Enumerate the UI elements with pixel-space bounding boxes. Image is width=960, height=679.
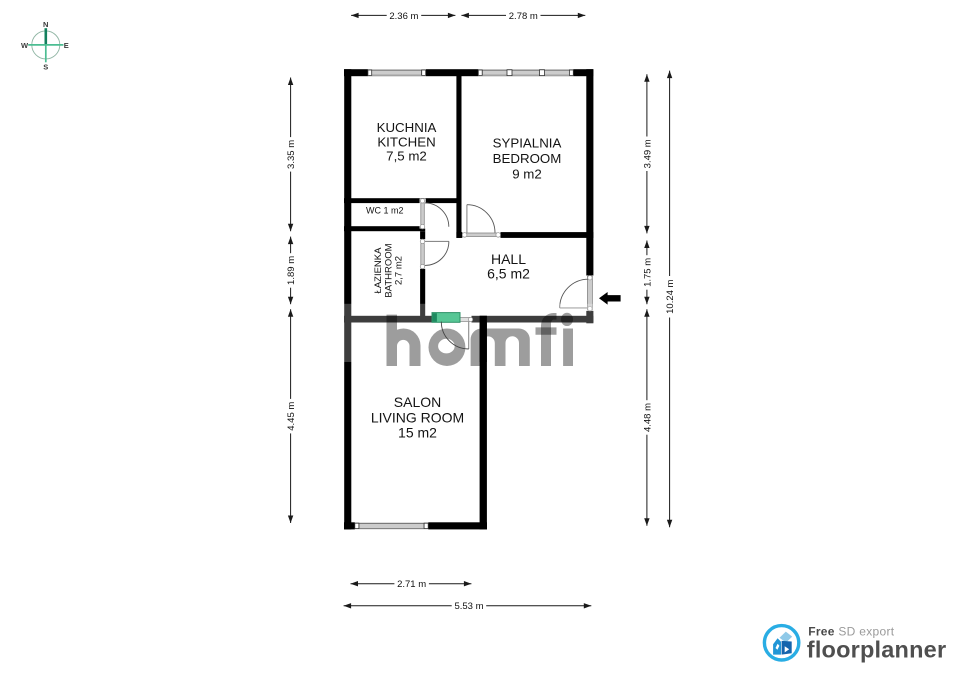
svg-text:2.78 m: 2.78 m [509, 11, 538, 22]
svg-text:5.53 m: 5.53 m [454, 601, 483, 612]
svg-text:4.45 m: 4.45 m [286, 402, 297, 431]
svg-text:7,5 m2: 7,5 m2 [386, 149, 427, 164]
svg-text:2.71 m: 2.71 m [397, 579, 426, 590]
svg-text:KITCHEN: KITCHEN [377, 134, 435, 149]
svg-text:N: N [43, 20, 48, 29]
svg-text:SYPIALNIA: SYPIALNIA [493, 135, 562, 150]
svg-text:KUCHNIA: KUCHNIA [377, 120, 437, 135]
svg-text:1.89 m: 1.89 m [286, 256, 297, 285]
svg-text:9 m2: 9 m2 [512, 167, 542, 182]
svg-text:3.49 m: 3.49 m [642, 139, 653, 168]
svg-text:6,5 m2: 6,5 m2 [487, 265, 530, 281]
svg-text:E: E [64, 41, 69, 50]
svg-text:2,7 m2: 2,7 m2 [394, 256, 405, 285]
svg-text:2.36 m: 2.36 m [389, 11, 418, 22]
svg-text:3.35 m: 3.35 m [286, 140, 297, 169]
svg-text:10.24 m: 10.24 m [665, 279, 676, 313]
svg-text:WC 1 m2: WC 1 m2 [366, 206, 404, 216]
svg-text:SALON: SALON [394, 394, 441, 410]
svg-text:W: W [21, 41, 29, 50]
svg-text:LIVING ROOM: LIVING ROOM [371, 409, 464, 425]
svg-text:15 m2: 15 m2 [398, 425, 437, 441]
svg-text:BEDROOM: BEDROOM [493, 151, 562, 166]
svg-text:4.48 m: 4.48 m [642, 403, 653, 432]
svg-text:1.75 m: 1.75 m [642, 258, 653, 287]
svg-text:floorplanner: floorplanner [807, 637, 947, 663]
svg-text:S: S [43, 62, 48, 71]
